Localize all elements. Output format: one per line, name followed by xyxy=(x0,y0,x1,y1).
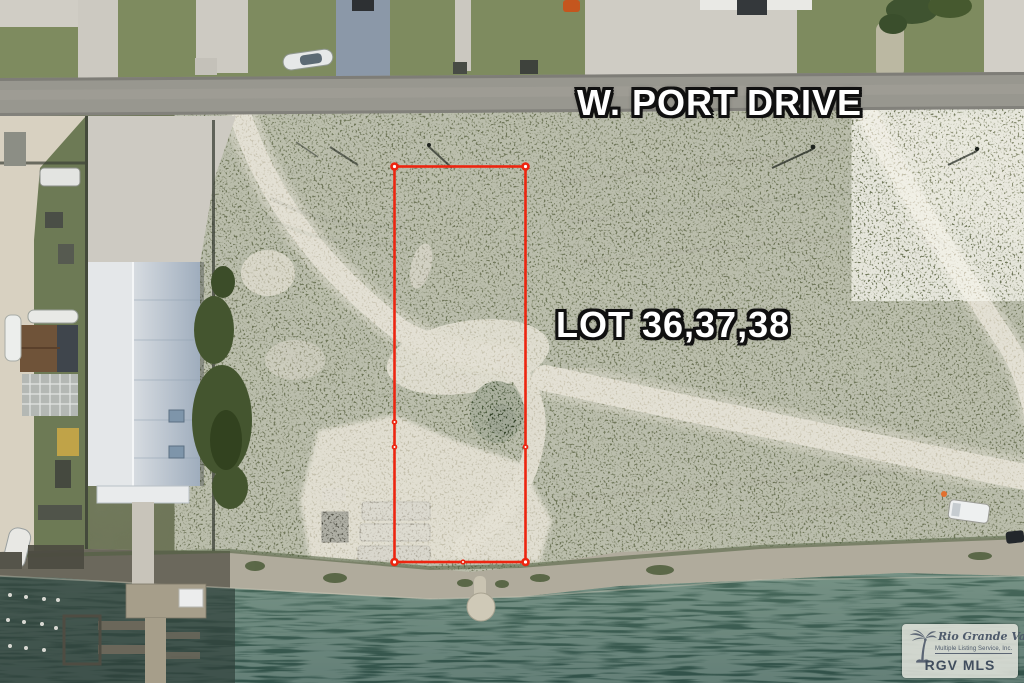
orange-marker xyxy=(941,491,947,497)
lot-numbers-label: LOT 36,37,38 xyxy=(556,304,790,346)
watermark-org-subtitle: Multiple Listing Service, Inc. xyxy=(935,646,1012,654)
dock-walk-concrete xyxy=(132,502,154,588)
fence-left xyxy=(85,116,88,558)
dock-shed-roof xyxy=(179,589,203,607)
house xyxy=(20,325,78,372)
road xyxy=(0,72,1024,116)
watermark-org-name: Rio Grande Valley xyxy=(938,630,1024,643)
aerial-listing-photo: W. PORT DRIVE LOT 36,37,38 Rio Grande Va… xyxy=(0,0,1024,683)
aerial-photo-art xyxy=(0,0,1024,683)
parked-car-orange xyxy=(563,0,580,12)
residential-strip xyxy=(0,0,1024,82)
watermark-abbr: RGV MLS xyxy=(902,657,1018,673)
dark-car xyxy=(1005,530,1024,544)
road-name-label: W. PORT DRIVE xyxy=(577,82,862,124)
parked-car-dark xyxy=(352,0,374,11)
lattice-frame xyxy=(22,374,78,416)
left-property xyxy=(0,116,252,560)
warehouse-building xyxy=(88,262,204,503)
parked-vehicle xyxy=(737,0,767,15)
dense-speckles xyxy=(860,112,1024,292)
mls-watermark: Rio Grande Valley Multiple Listing Servi… xyxy=(902,624,1018,678)
